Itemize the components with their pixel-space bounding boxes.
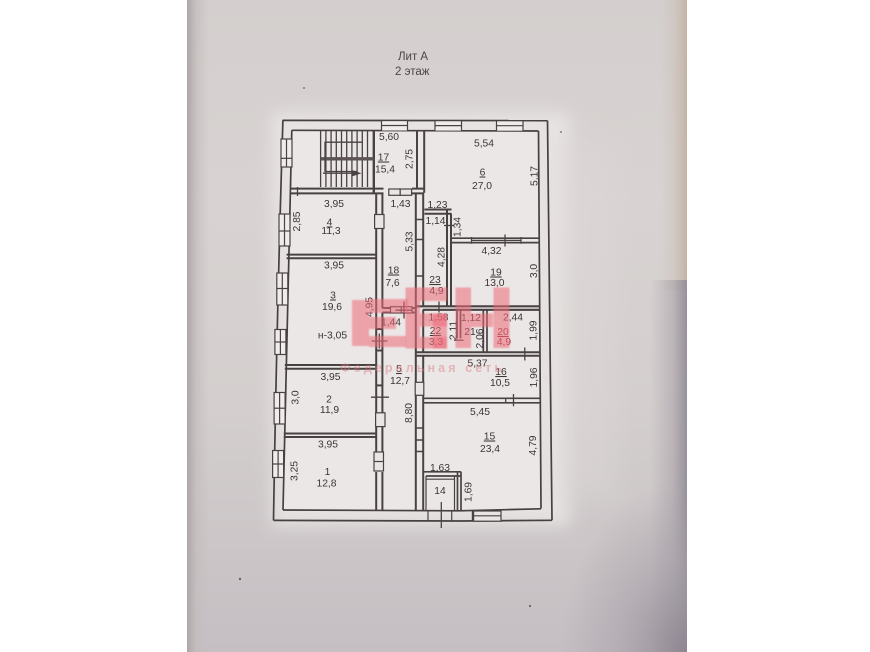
svg-text:1,34: 1,34 [453, 217, 464, 237]
svg-text:2,06: 2,06 [475, 328, 486, 348]
svg-text:15,4: 15,4 [375, 165, 395, 176]
svg-text:2 этаж: 2 этаж [395, 66, 430, 78]
svg-text:27,0: 27,0 [472, 181, 492, 192]
svg-text:23,4: 23,4 [480, 444, 500, 455]
svg-text:10,5: 10,5 [490, 378, 510, 389]
svg-text:4,79: 4,79 [528, 435, 539, 455]
svg-text:5,60: 5,60 [379, 132, 399, 143]
svg-text:12,7: 12,7 [390, 376, 410, 387]
svg-text:1,14: 1,14 [425, 216, 445, 227]
svg-text:14: 14 [434, 486, 446, 497]
svg-text:2: 2 [326, 395, 332, 406]
svg-text:3,95: 3,95 [320, 372, 340, 383]
svg-text:17: 17 [378, 153, 390, 164]
svg-text:1,99: 1,99 [529, 320, 540, 340]
svg-text:6: 6 [480, 168, 486, 179]
svg-text:12,8: 12,8 [316, 479, 336, 490]
svg-text:Лит А: Лит А [398, 51, 428, 63]
svg-text:2,75: 2,75 [405, 149, 416, 169]
svg-text:Федеральная сеть: Федеральная сеть [340, 361, 505, 375]
svg-text:13,0: 13,0 [484, 278, 504, 289]
svg-text:4,32: 4,32 [481, 246, 501, 257]
svg-text:8,80: 8,80 [404, 403, 415, 423]
svg-text:1,69: 1,69 [464, 482, 475, 502]
svg-text:3: 3 [330, 291, 336, 302]
svg-text:3,0: 3,0 [529, 264, 540, 279]
svg-text:1: 1 [325, 467, 331, 478]
svg-text:18: 18 [388, 266, 400, 277]
svg-text:1,23: 1,23 [427, 200, 447, 211]
svg-text:7,6: 7,6 [385, 278, 400, 289]
svg-text:3,95: 3,95 [318, 440, 338, 451]
svg-text:5,45: 5,45 [470, 407, 490, 418]
svg-text:19,6: 19,6 [322, 302, 342, 313]
svg-text:3,95: 3,95 [324, 199, 344, 210]
svg-text:1,96: 1,96 [529, 367, 540, 387]
svg-text:19: 19 [490, 268, 502, 279]
svg-text:11,9: 11,9 [320, 405, 340, 416]
svg-text:3,25: 3,25 [290, 461, 301, 481]
svg-text:н-3,05: н-3,05 [318, 331, 347, 342]
svg-text:5,33: 5,33 [405, 231, 416, 251]
svg-text:11,3: 11,3 [321, 226, 341, 237]
svg-text:3,95: 3,95 [324, 261, 344, 272]
svg-text:23: 23 [429, 275, 441, 286]
svg-text:15: 15 [484, 432, 496, 443]
svg-text:3,0: 3,0 [291, 390, 302, 405]
svg-text:1,43: 1,43 [390, 199, 410, 210]
svg-text:4,28: 4,28 [437, 247, 448, 267]
svg-text:5,54: 5,54 [474, 139, 494, 150]
svg-text:2,85: 2,85 [292, 211, 303, 231]
svg-text:5,17: 5,17 [530, 166, 541, 186]
svg-text:1,63: 1,63 [430, 463, 450, 474]
